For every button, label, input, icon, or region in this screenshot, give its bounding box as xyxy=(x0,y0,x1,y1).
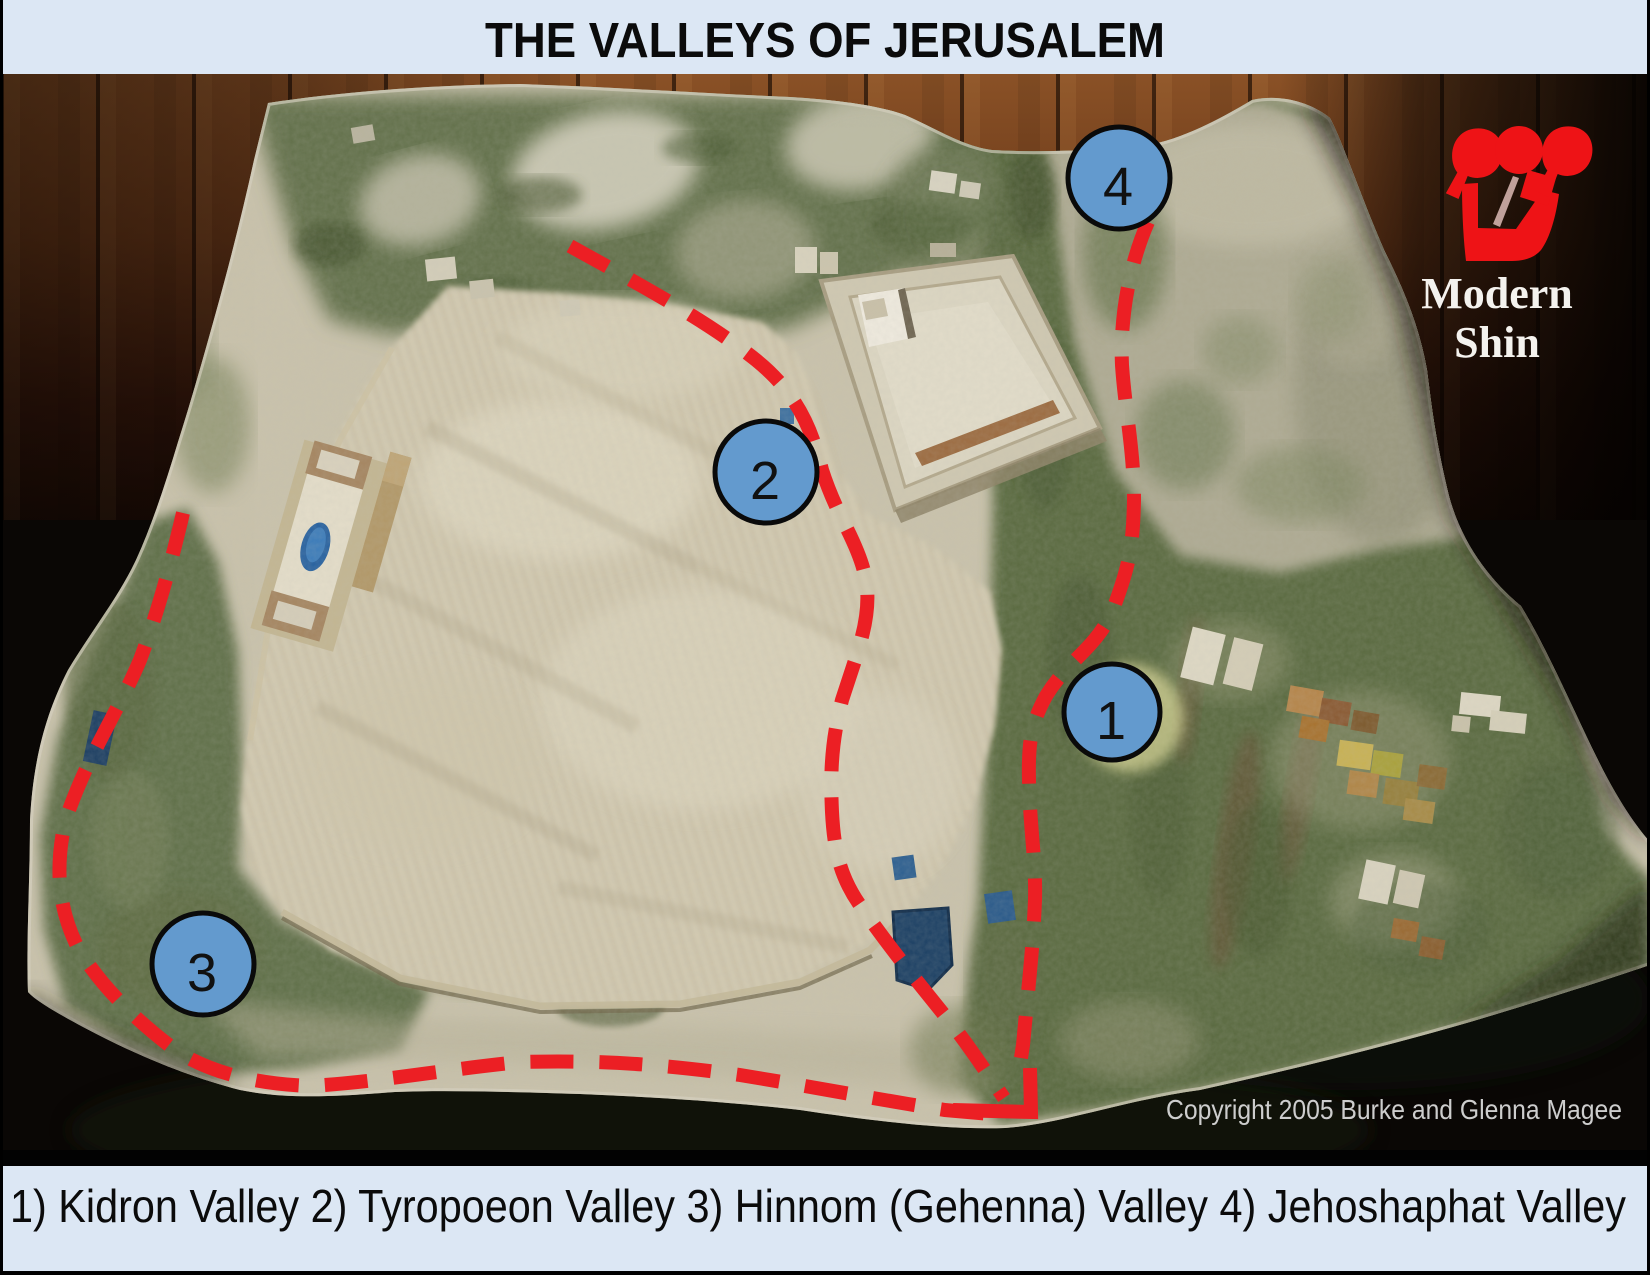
svg-text:2: 2 xyxy=(750,451,780,511)
svg-text:4: 4 xyxy=(1103,157,1133,217)
svg-text:Shin: Shin xyxy=(1454,318,1540,367)
svg-text:Modern: Modern xyxy=(1421,269,1573,318)
svg-text:1) Kidron Valley 2) Tyropoeon: 1) Kidron Valley 2) Tyropoeon Valley 3) … xyxy=(10,1180,1626,1232)
svg-text:Copyright 2005 Burke and Glenn: Copyright 2005 Burke and Glenna Magee xyxy=(1166,1094,1622,1125)
svg-text:3: 3 xyxy=(187,943,217,1003)
svg-text:THE VALLEYS OF JERUSALEM: THE VALLEYS OF JERUSALEM xyxy=(485,14,1165,68)
svg-text:1: 1 xyxy=(1096,691,1126,751)
